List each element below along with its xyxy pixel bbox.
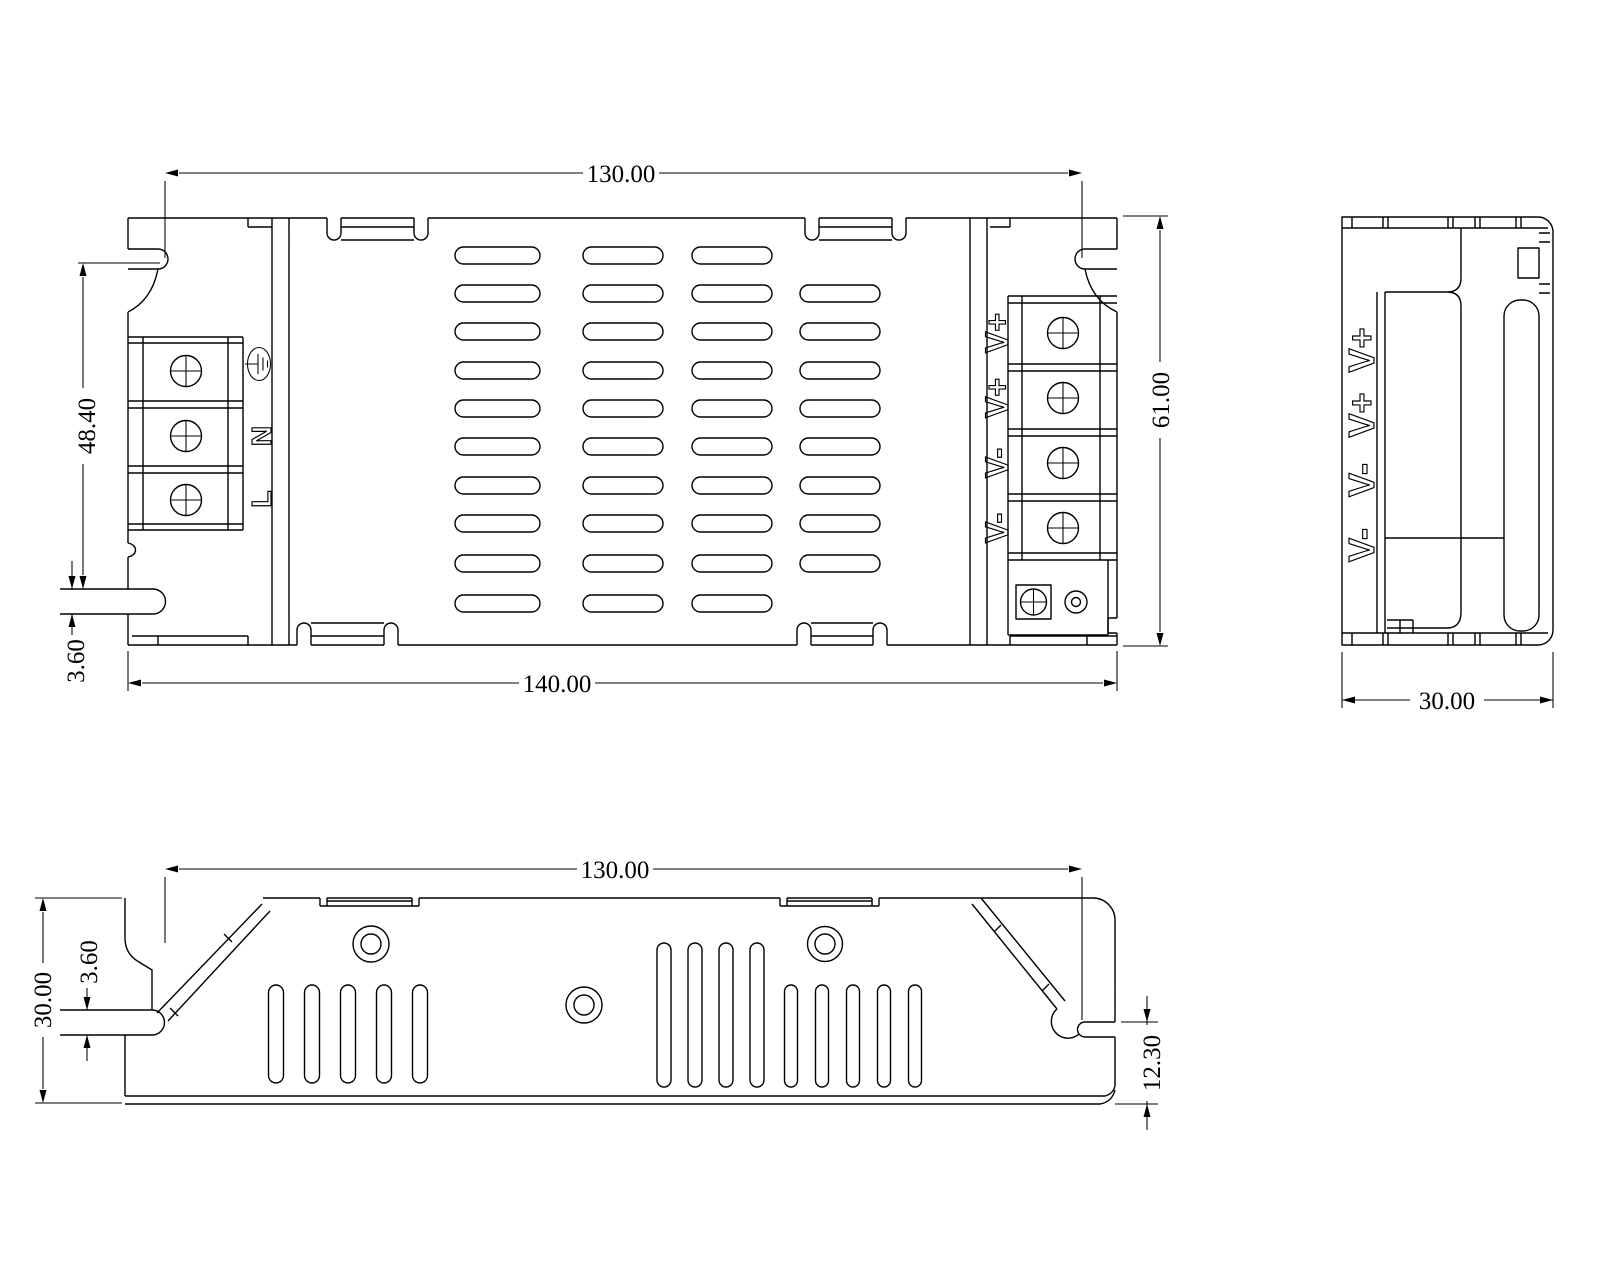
louver-slot <box>692 285 772 302</box>
output-labels: V+V+V-V- <box>979 313 1015 543</box>
engineering-drawing: N L V+V+V-V- 130.00 140.00 <box>0 0 1600 1280</box>
output-terminal-screws <box>1048 318 1079 544</box>
louver-slot <box>800 400 880 417</box>
dimension-arrow <box>1157 633 1164 646</box>
vent-slot <box>847 985 860 1087</box>
louver-slot <box>692 323 772 340</box>
svg-text:130.00: 130.00 <box>581 857 650 884</box>
dimension-arrow <box>80 263 87 276</box>
vent-slot <box>785 985 798 1087</box>
dimension-arrow <box>1144 1009 1151 1022</box>
mounting-hole-inner <box>574 995 594 1015</box>
dimension-arrow <box>1342 697 1355 704</box>
power-led-indicator <box>1065 591 1087 613</box>
vent-slot <box>305 985 320 1083</box>
dimension-arrowheads <box>40 170 1554 1118</box>
louver-slot <box>583 400 663 417</box>
dimension-arrow <box>165 866 178 873</box>
dim-slot-height-top: 3.60 <box>62 561 90 687</box>
bottom-view-outline <box>60 898 1115 1104</box>
louver-slot <box>692 515 772 532</box>
dimension-arrow <box>165 170 178 177</box>
vent-slot <box>377 985 392 1083</box>
top-view: N L V+V+V-V- 130.00 140.00 <box>60 160 1175 698</box>
louver-slot <box>455 477 540 494</box>
louver-slot <box>583 555 663 572</box>
input-label-n: N <box>246 426 277 446</box>
svg-text:130.00: 130.00 <box>587 161 656 188</box>
dimension-arrow <box>69 614 76 627</box>
dim-overall-height-bottom: 30.00 <box>29 898 122 1103</box>
louver-slot <box>583 323 663 340</box>
mounting-hole-outer <box>566 987 602 1023</box>
louver-slot <box>692 595 772 612</box>
louver-slot <box>692 438 772 455</box>
drawing-sheet: N L V+V+V-V- 130.00 140.00 <box>0 0 1600 1280</box>
louver-slot <box>692 362 772 379</box>
svg-text:61.00: 61.00 <box>1148 372 1175 428</box>
dim-overall-height-top: 61.00 <box>1123 216 1175 646</box>
louver-slot <box>800 323 880 340</box>
vent-slot <box>878 985 891 1087</box>
bottom-vent-slots <box>269 943 922 1087</box>
louver-slot <box>583 362 663 379</box>
svg-text:3.60: 3.60 <box>76 940 103 984</box>
dim-overall-width-top: 140.00 <box>128 651 1117 698</box>
dimension-arrow <box>1157 216 1164 229</box>
louver-slot <box>583 595 663 612</box>
mounting-holes <box>353 926 843 1023</box>
louver-slot <box>455 515 540 532</box>
vent-slot <box>341 985 356 1083</box>
louver-slot <box>583 515 663 532</box>
side-view: V+V+V-V- 30.00 <box>1341 217 1553 715</box>
svg-text:30.00: 30.00 <box>30 972 57 1028</box>
svg-text:30.00: 30.00 <box>1419 688 1475 715</box>
vent-slot <box>269 985 284 1083</box>
louver-slot <box>455 438 540 455</box>
vent-slot <box>909 985 922 1087</box>
louver-slot <box>800 285 880 302</box>
louver-slot <box>800 477 880 494</box>
dimension-arrow <box>1104 680 1117 687</box>
louver-slot <box>692 477 772 494</box>
voltage-adjust-potentiometer <box>1016 585 1051 619</box>
vent-slot <box>413 985 428 1083</box>
dimension-arrow <box>84 1035 91 1048</box>
vent-slot <box>816 985 829 1087</box>
dim-mounting-width-top: 130.00 <box>165 160 1082 258</box>
dimension-arrow <box>1540 697 1553 704</box>
louver-slot <box>692 400 772 417</box>
input-terminal-screws <box>171 356 202 516</box>
vent-slot <box>719 943 733 1087</box>
louver-slot <box>583 438 663 455</box>
dimension-arrow <box>128 680 141 687</box>
side-output-labels: V+V+V-V- <box>1341 327 1382 562</box>
svg-text:3.60: 3.60 <box>63 639 90 683</box>
louver-slot <box>692 555 772 572</box>
side-output-label: V- <box>1341 528 1382 562</box>
output-label: V- <box>979 448 1015 478</box>
dimension-arrow <box>40 1090 47 1103</box>
output-label: V+ <box>979 378 1015 418</box>
dimension-arrow <box>80 576 87 589</box>
side-view-slot <box>1504 300 1539 631</box>
mounting-hole-outer <box>353 926 389 962</box>
side-output-label: V- <box>1341 463 1382 497</box>
svg-text:12.30: 12.30 <box>1139 1035 1166 1091</box>
louver-slot <box>800 515 880 532</box>
louver-slot <box>455 400 540 417</box>
louver-slot <box>800 438 880 455</box>
side-output-label: V+ <box>1341 327 1382 372</box>
louver-slot <box>455 555 540 572</box>
louver-slot <box>583 285 663 302</box>
dimension-arrow <box>1069 866 1082 873</box>
louver-slot <box>455 323 540 340</box>
louver-slot <box>455 595 540 612</box>
output-label: V- <box>979 513 1015 543</box>
louver-slot <box>583 247 663 264</box>
louver-slot <box>455 285 540 302</box>
vent-slot <box>750 943 764 1087</box>
vent-slot <box>657 943 671 1087</box>
louver-slot <box>583 477 663 494</box>
side-output-label: V+ <box>1341 392 1382 437</box>
svg-text:140.00: 140.00 <box>523 671 592 698</box>
louver-slot <box>800 362 880 379</box>
mounting-hole-outer <box>808 927 843 962</box>
input-label-l: L <box>246 490 277 507</box>
mounting-hole-inner <box>815 934 835 954</box>
svg-text:48.40: 48.40 <box>74 398 101 454</box>
dimension-arrow <box>1069 170 1082 177</box>
side-view-tab <box>1518 248 1539 278</box>
dim-depth-side: 30.00 <box>1342 652 1553 715</box>
dim-mounting-width-bottom: 130.00 <box>165 856 1082 1020</box>
mounting-hole-inner <box>361 934 381 954</box>
louver-slot <box>692 247 772 264</box>
dim-corner-height-bottom: 12.30 <box>1115 996 1166 1130</box>
dimension-arrow <box>1144 1104 1151 1117</box>
top-view-outline <box>60 218 1117 645</box>
earth-ground-icon <box>245 348 271 381</box>
bottom-view: 130.00 30.00 3.60 12.30 <box>29 856 1166 1130</box>
dimension-arrow <box>40 898 47 911</box>
dimension-arrow <box>69 576 76 589</box>
dim-left-height-top: 48.40 <box>73 263 160 575</box>
louver-vents <box>455 247 880 612</box>
louver-slot <box>455 362 540 379</box>
louver-slot <box>455 247 540 264</box>
output-label: V+ <box>979 313 1015 353</box>
louver-slot <box>800 555 880 572</box>
dimension-arrow <box>84 997 91 1010</box>
vent-slot <box>688 943 702 1087</box>
